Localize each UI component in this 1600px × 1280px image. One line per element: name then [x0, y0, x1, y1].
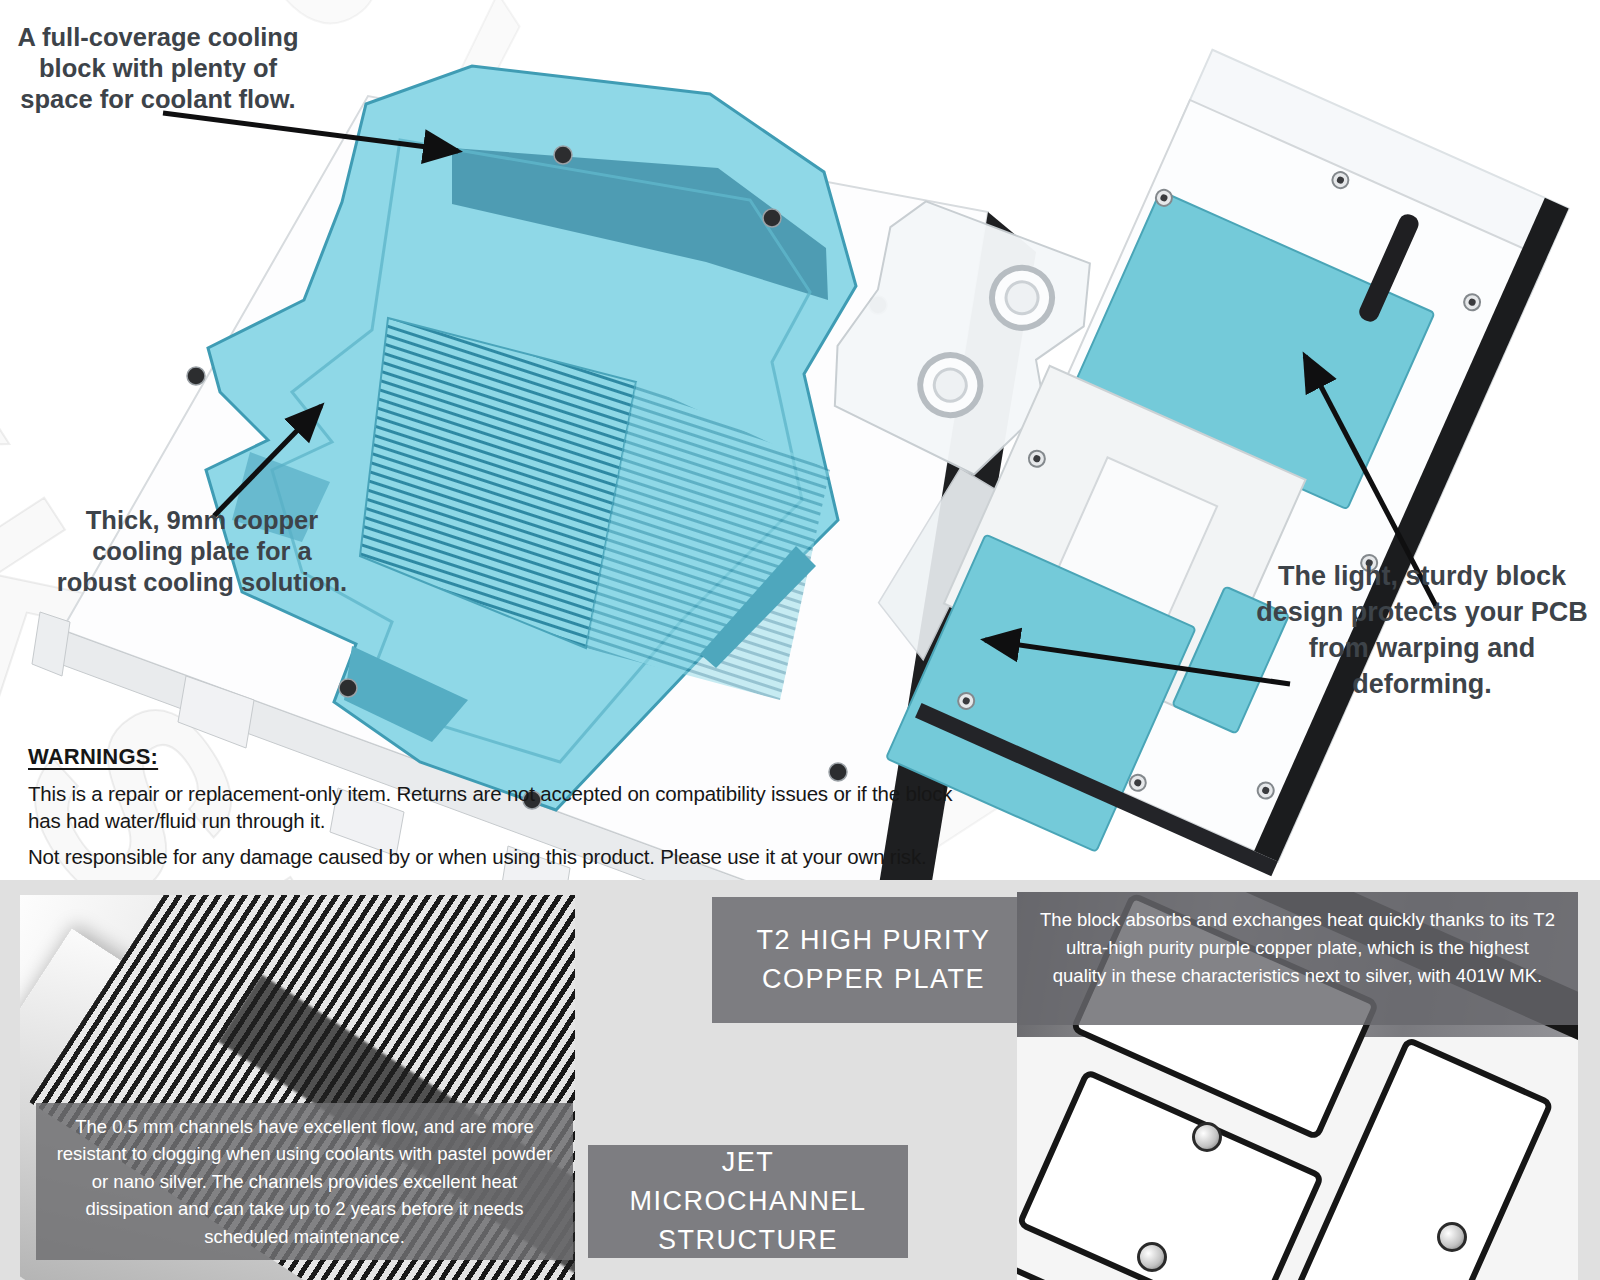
feature-band: The 0.5 mm channels have excellent flow,… — [0, 880, 1600, 1280]
annotation-coolant-flow: A full-coverage cooling block with plent… — [4, 22, 312, 115]
product-infographic: BYKSKI.US BYKSKI.US — [0, 0, 1600, 1280]
copper-plate-description: The block absorbs and exchanges heat qui… — [1017, 892, 1578, 1025]
screw — [1437, 1222, 1467, 1252]
warnings-section: WARNINGS: This is a repair or replacemen… — [28, 744, 978, 879]
warnings-para-1: This is a repair or replacement-only ite… — [28, 780, 978, 834]
screw — [1137, 1242, 1167, 1272]
warnings-para-2: Not responsible for any damage caused by… — [28, 843, 978, 870]
microchannel-photo: The 0.5 mm channels have excellent flow,… — [20, 895, 575, 1280]
annotation-pcb-protection: The light, sturdy block design protects … — [1246, 558, 1598, 702]
label-jet-microchannel: JET MICROCHANNEL STRUCTURE — [588, 1145, 908, 1258]
annotation-copper-plate: Thick, 9mm copper cooling plate for a ro… — [52, 505, 352, 598]
backplate-photo: The block absorbs and exchanges heat qui… — [1017, 892, 1578, 1280]
microchannel-description: The 0.5 mm channels have excellent flow,… — [36, 1103, 573, 1261]
warnings-heading: WARNINGS: — [28, 744, 978, 770]
label-copper-plate: T2 HIGH PURITY COPPER PLATE — [712, 897, 1035, 1023]
screw — [1192, 1122, 1222, 1152]
